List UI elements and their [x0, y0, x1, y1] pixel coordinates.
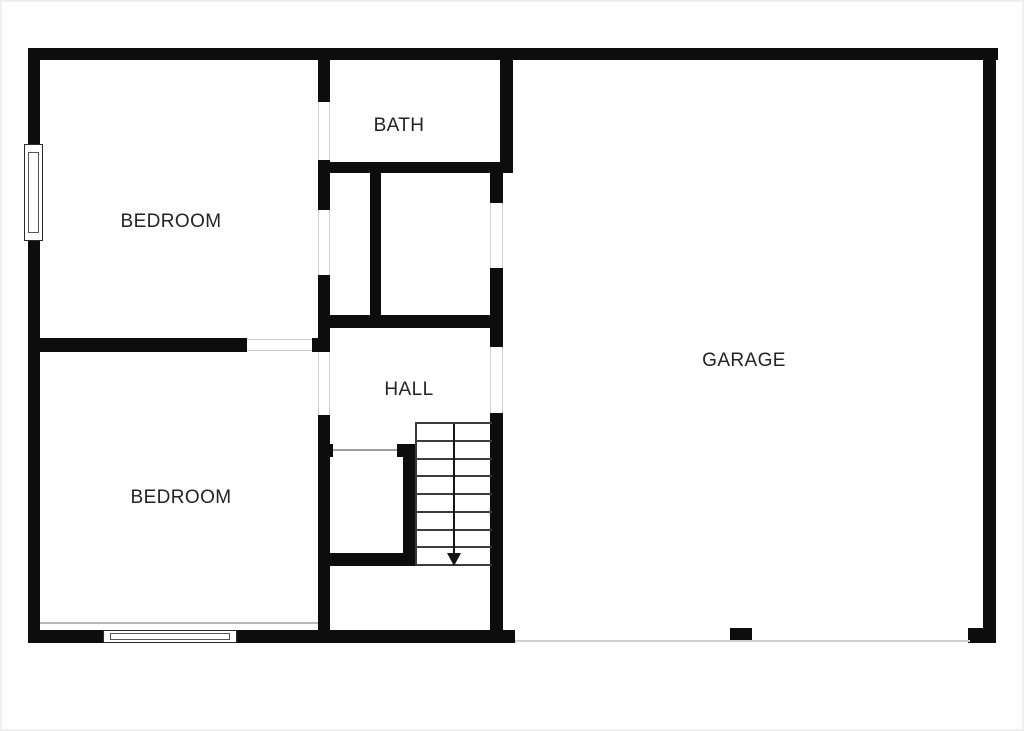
- wall: [28, 338, 247, 352]
- room-label-garage: GARAGE: [702, 350, 786, 372]
- wall: [983, 48, 996, 643]
- thin-line: [329, 102, 330, 160]
- wall: [322, 162, 513, 173]
- room-label-hall: HALL: [384, 379, 433, 401]
- wall: [28, 48, 998, 60]
- wall: [28, 48, 40, 145]
- floor-plan: BEDROOM BATH BEDROOM HALL GARAGE: [0, 0, 1024, 731]
- thin-line: [247, 350, 312, 351]
- wall: [490, 173, 503, 203]
- wall: [312, 338, 330, 352]
- wall: [318, 553, 415, 566]
- wall: [968, 628, 996, 643]
- window: [103, 630, 237, 643]
- wall: [28, 240, 40, 643]
- room-label-bedroom-bottom: BEDROOM: [131, 487, 232, 509]
- thin-line: [318, 352, 319, 415]
- window: [24, 144, 43, 241]
- window-pane: [28, 152, 39, 233]
- wall: [318, 444, 333, 457]
- wall: [28, 630, 515, 643]
- thin-line: [329, 352, 330, 415]
- staircase: [415, 422, 492, 566]
- thin-line: [318, 102, 319, 160]
- stairs-direction-line: [453, 424, 455, 554]
- wall: [403, 444, 415, 566]
- thin-line: [40, 622, 318, 624]
- thin-line: [318, 210, 319, 275]
- thin-line: [490, 347, 491, 413]
- wall: [500, 60, 513, 173]
- room-label-bath: BATH: [374, 115, 425, 137]
- stairs-down-arrow-icon: [447, 553, 461, 566]
- room-label-bedroom-top: BEDROOM: [121, 211, 222, 233]
- thin-line: [502, 203, 503, 268]
- wall: [370, 173, 381, 328]
- wall: [397, 444, 415, 457]
- thin-line: [333, 449, 397, 451]
- wall: [318, 60, 330, 102]
- thin-line: [329, 210, 330, 275]
- window-pane: [110, 633, 230, 640]
- thin-line: [515, 640, 970, 642]
- wall: [322, 315, 495, 328]
- thin-line: [247, 339, 312, 340]
- thin-line: [490, 203, 491, 268]
- wall: [490, 268, 503, 347]
- thin-line: [502, 347, 503, 413]
